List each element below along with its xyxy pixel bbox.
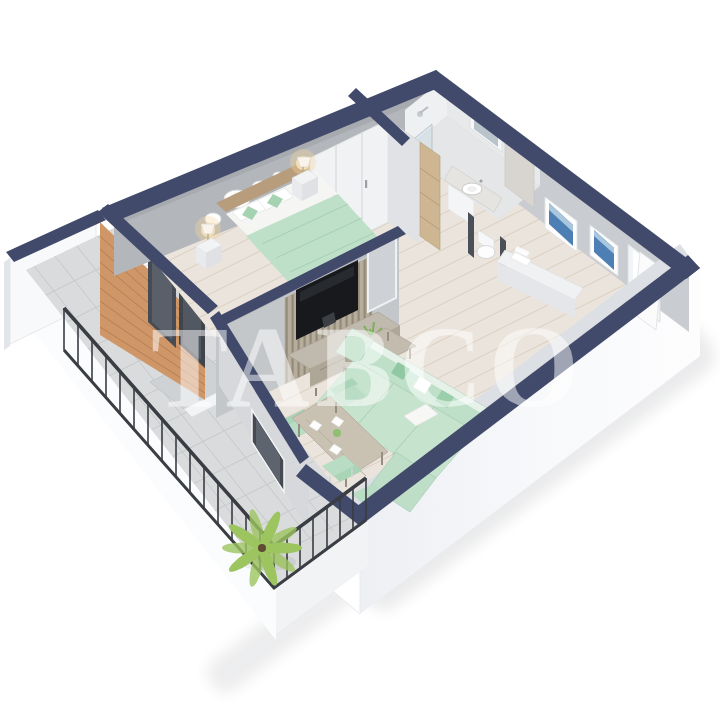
apartment-3d-scene: TABCO	[0, 0, 720, 720]
floorplan-render: TABCO	[0, 0, 720, 720]
watermark-text: TABCO	[151, 303, 585, 431]
shelf-unit	[420, 142, 440, 250]
